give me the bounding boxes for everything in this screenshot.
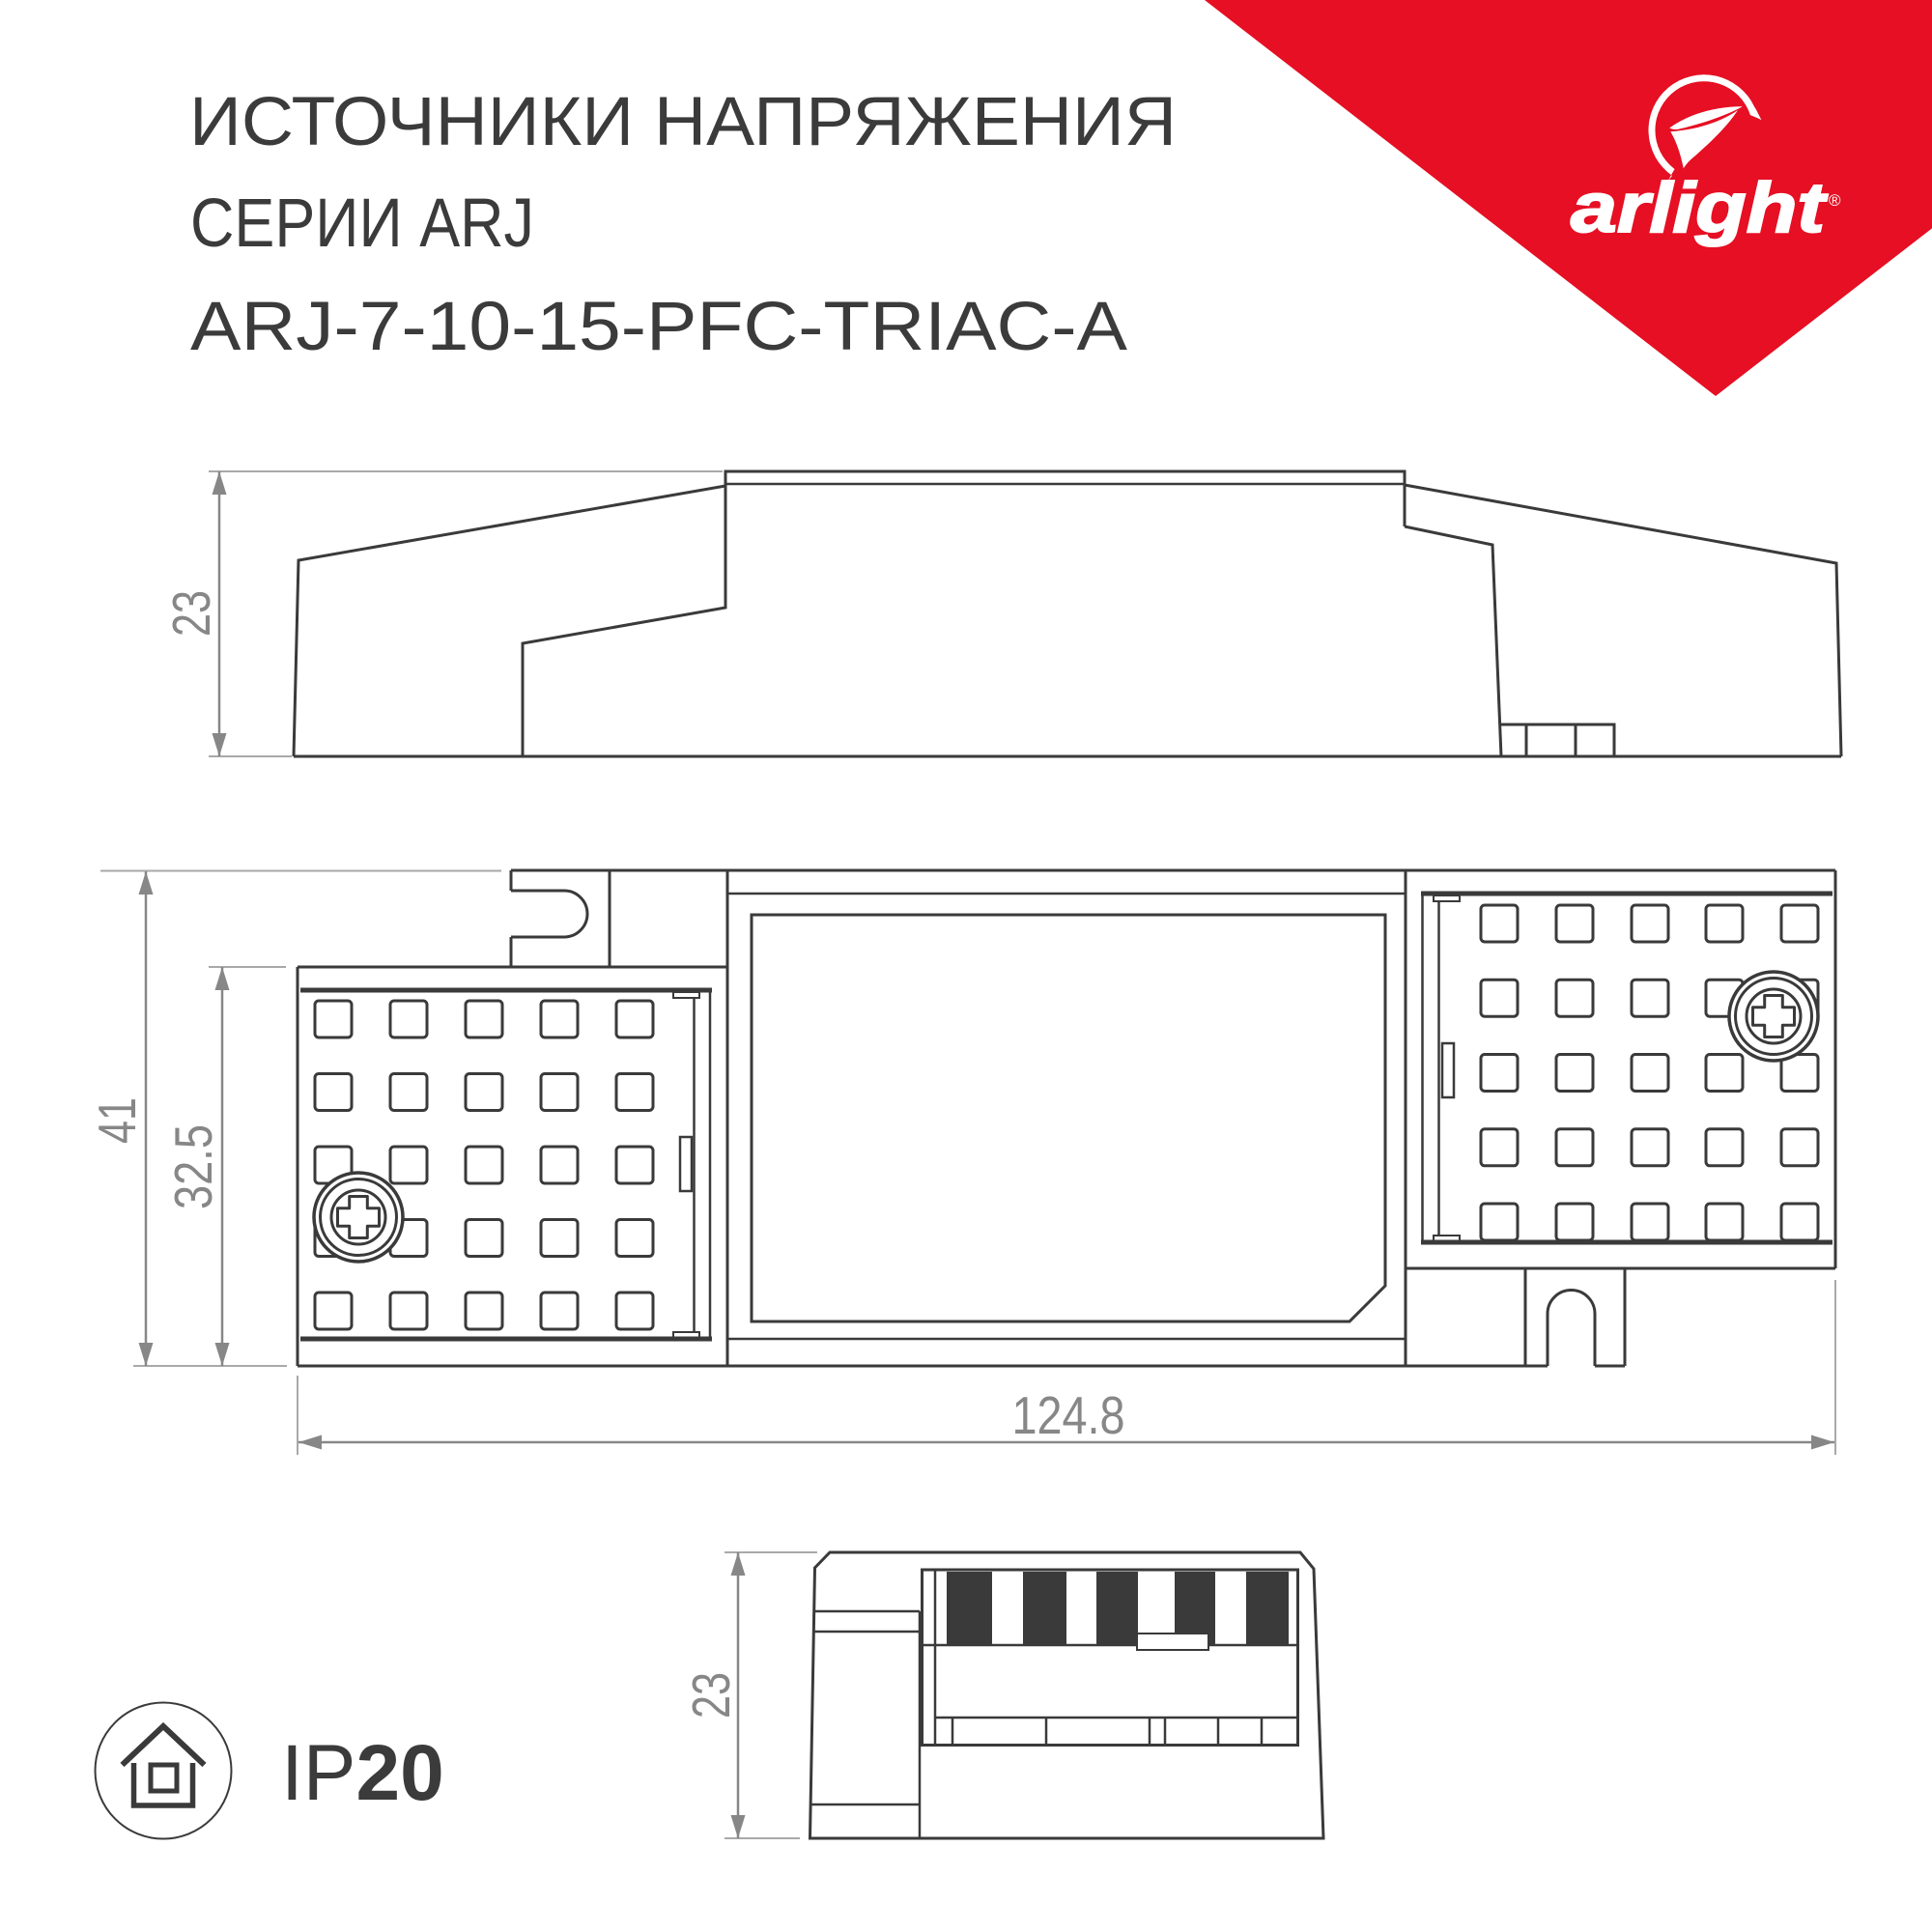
svg-text:ИСТОЧНИКИ НАПРЯЖЕНИЯ: ИСТОЧНИКИ НАПРЯЖЕНИЯ [189,84,1177,160]
svg-text:124.8: 124.8 [1012,1385,1125,1445]
svg-text:ARJ-7-10-15-PFC-TRIAC-A: ARJ-7-10-15-PFC-TRIAC-A [190,289,1128,365]
svg-text:23: 23 [161,590,221,637]
svg-text:СЕРИИ ARJ: СЕРИИ ARJ [190,185,534,262]
svg-text:32.5: 32.5 [163,1124,223,1209]
svg-text:®: ® [1829,191,1841,210]
svg-text:23: 23 [681,1672,741,1719]
svg-text:arlight: arlight [1571,169,1828,247]
svg-text:IP20: IP20 [281,1729,444,1817]
svg-text:41: 41 [87,1097,147,1144]
